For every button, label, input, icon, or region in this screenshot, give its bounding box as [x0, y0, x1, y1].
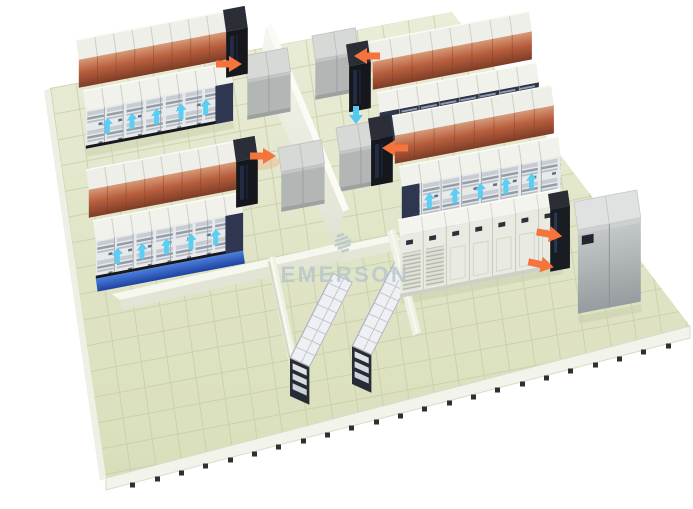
datacenter-3d-render: EMERSON — [0, 0, 693, 509]
watermark-text: EMERSON — [281, 262, 410, 287]
row-cooling-unit-left-2 — [278, 140, 325, 212]
heat-rejection-enclosure — [574, 190, 641, 314]
row-cooling-unit-left-1 — [244, 48, 291, 120]
scene-canvas: EMERSON — [0, 0, 693, 509]
